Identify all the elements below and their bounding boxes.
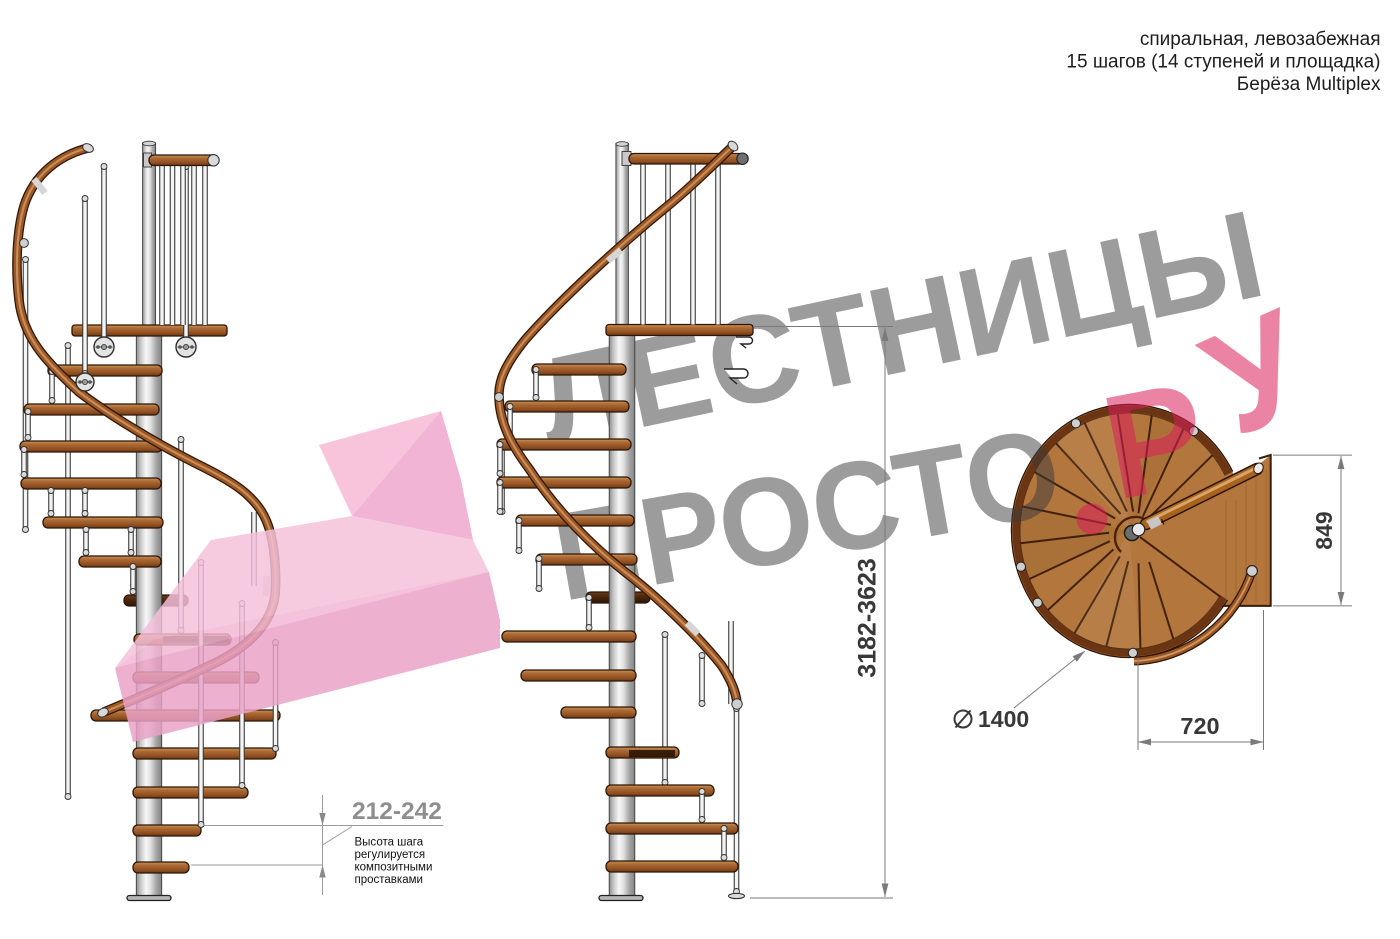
svg-text:15 шагов (14 ступеней и площад: 15 шагов (14 ступеней и площадка) <box>1066 52 1380 73</box>
svg-text:Высота шага: Высота шага <box>355 837 424 849</box>
svg-text:1400: 1400 <box>978 706 1029 732</box>
svg-text:регулируется: регулируется <box>355 849 426 861</box>
svg-text:3182-3623: 3182-3623 <box>854 558 882 678</box>
svg-text:Берёза Multiplex: Берёза Multiplex <box>1237 74 1381 95</box>
svg-text:849: 849 <box>1311 511 1337 549</box>
svg-text:композитными: композитными <box>355 862 433 874</box>
svg-text:проставками: проставками <box>355 874 423 886</box>
svg-text:720: 720 <box>1180 713 1219 739</box>
svg-text:212-242: 212-242 <box>352 798 442 825</box>
svg-text:спиральная, левозабежная: спиральная, левозабежная <box>1140 29 1381 50</box>
